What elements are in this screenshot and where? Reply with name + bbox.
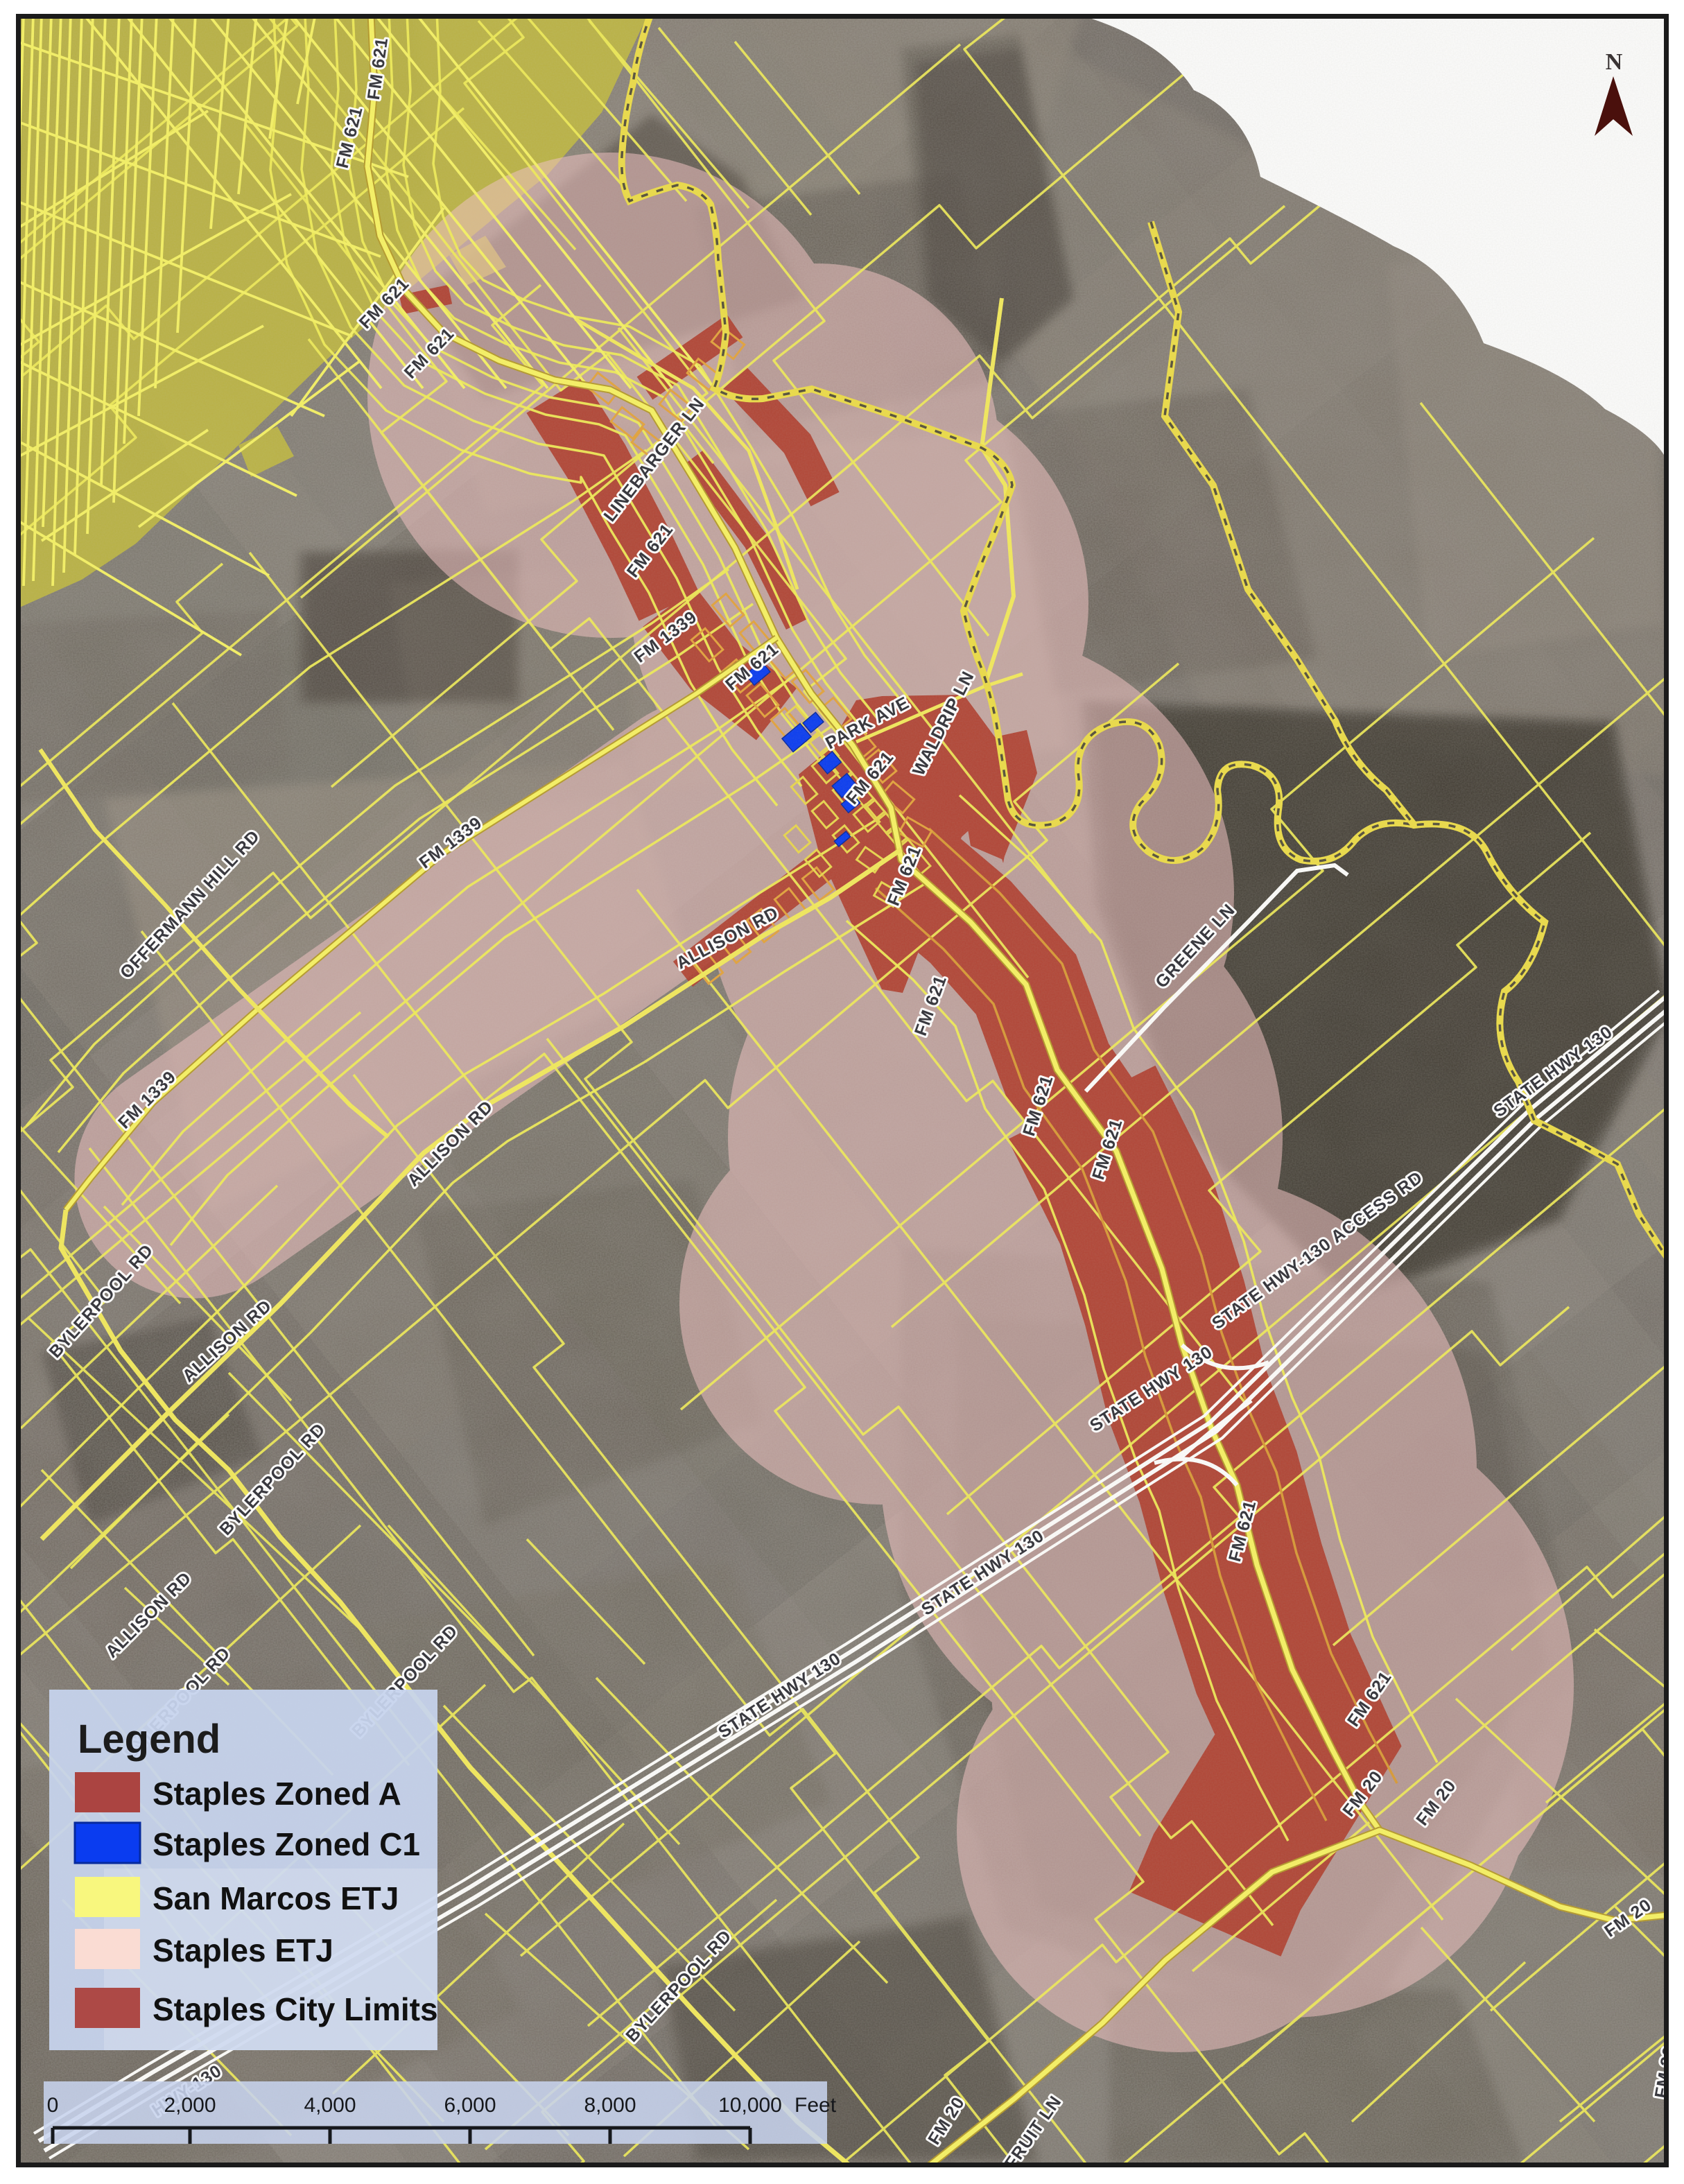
- svg-text:0: 0: [47, 2094, 59, 2117]
- svg-text:Feet: Feet: [795, 2094, 837, 2117]
- svg-text:San Marcos ETJ: San Marcos ETJ: [153, 1880, 399, 1916]
- svg-text:10,000: 10,000: [718, 2094, 782, 2117]
- svg-text:Legend: Legend: [78, 1717, 220, 1762]
- svg-text:8,000: 8,000: [584, 2094, 636, 2117]
- svg-text:6,000: 6,000: [444, 2094, 496, 2117]
- svg-text:4,000: 4,000: [304, 2094, 356, 2117]
- svg-text:Staples City Limits: Staples City Limits: [153, 1991, 438, 2027]
- svg-text:Staples ETJ: Staples ETJ: [153, 1932, 333, 1968]
- svg-text:Staples Zoned C1: Staples Zoned C1: [153, 1826, 420, 1862]
- svg-text:N: N: [1606, 49, 1623, 75]
- svg-text:Staples Zoned A: Staples Zoned A: [153, 1776, 401, 1812]
- svg-text:2,000: 2,000: [164, 2094, 216, 2117]
